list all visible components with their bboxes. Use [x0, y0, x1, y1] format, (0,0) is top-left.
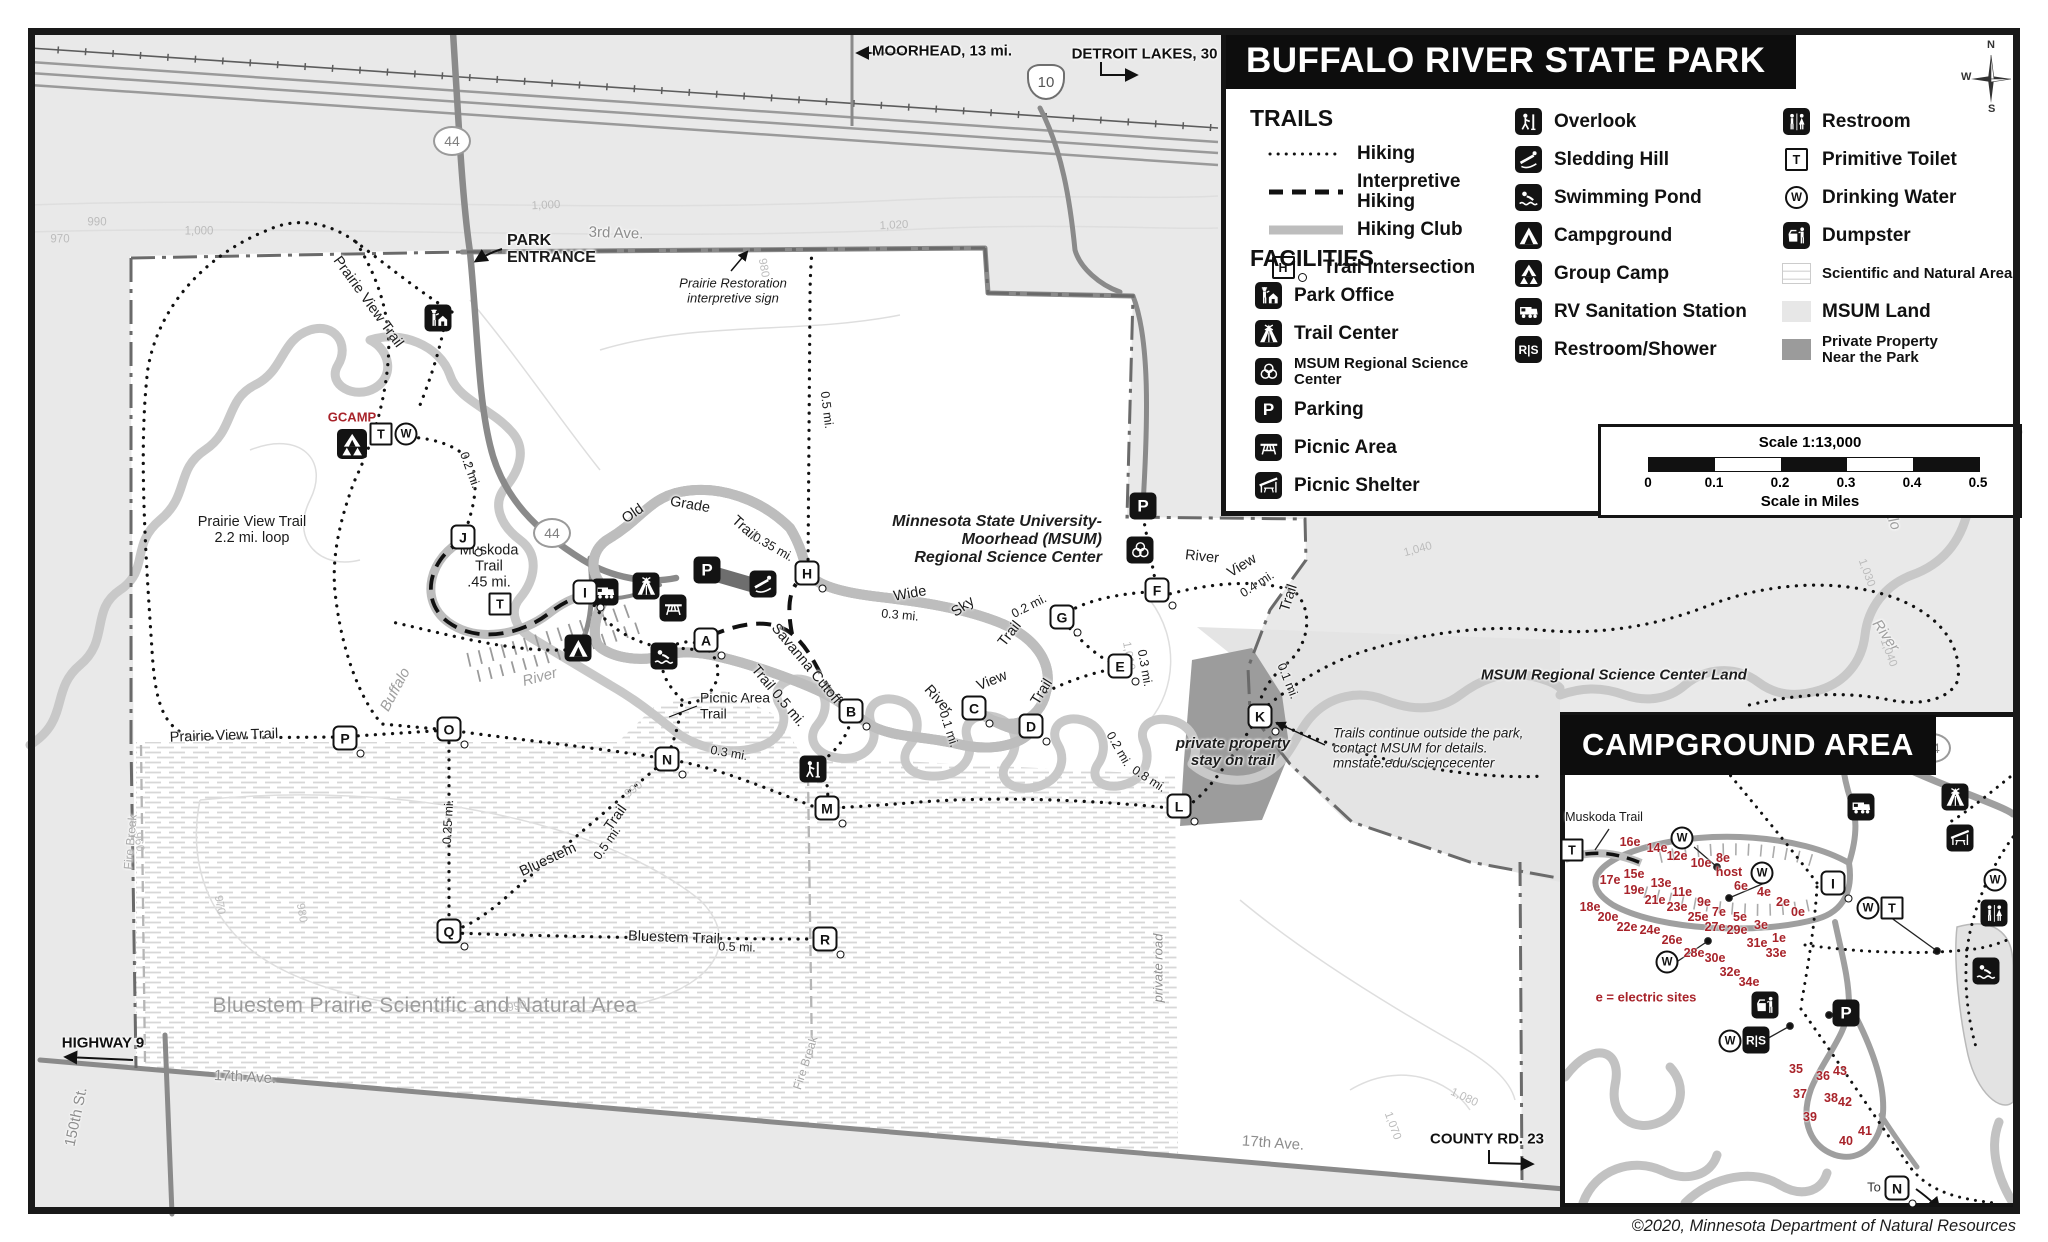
- dashed-sample: [1266, 177, 1346, 206]
- swim-icon: [1515, 184, 1542, 211]
- facility-legend-item: RV Sanitation Station: [1514, 297, 1774, 326]
- facility-legend-item: Park Office: [1254, 281, 1504, 310]
- campground-inset: [1560, 712, 2018, 1208]
- facility-legend-item: TPrimitive Toilet: [1782, 145, 2018, 174]
- scale-title: Scale 1:13,000: [1601, 434, 2019, 451]
- sw-priv-cell: [1782, 335, 1811, 364]
- rv-icon: [1515, 298, 1542, 325]
- inset-title: CAMPGROUND AREA: [1560, 715, 1936, 775]
- rings-icon: [1255, 358, 1282, 385]
- facility-legend-label: Restroom/Shower: [1554, 340, 1717, 359]
- facilities-column-3: RestroomTPrimitive ToiletWDrinking Water…: [1782, 107, 2018, 373]
- facility-legend-item: Dumpster: [1782, 221, 2018, 250]
- facilities-heading: FACILITIES: [1250, 245, 1374, 272]
- compass-e: E: [2013, 71, 2020, 83]
- picnic-icon: [1255, 434, 1282, 461]
- facility-legend-item: Trail Center: [1254, 319, 1504, 348]
- facility-legend-item: PParking: [1254, 395, 1504, 424]
- trails-legend-label: Hiking Club: [1357, 220, 1463, 239]
- facility-legend-item: Overlook: [1514, 107, 1774, 136]
- look-icon: [1515, 108, 1542, 135]
- facility-legend-label: Restroom: [1822, 112, 1911, 131]
- facility-legend-item: Picnic Area: [1254, 433, 1504, 462]
- b-rv-cell: [1514, 297, 1543, 326]
- facility-legend-item: Restroom: [1782, 107, 2018, 136]
- facility-legend-item: Campground: [1514, 221, 1774, 250]
- facilities-column-1: Park OfficeTrail CenterMSUM Regional Sci…: [1254, 281, 1504, 509]
- b-lodge-cell: [1254, 319, 1283, 348]
- campground-inset-art: [1565, 717, 2013, 1203]
- b-picnic-cell: [1254, 433, 1283, 462]
- b-rings-cell: [1254, 357, 1283, 386]
- facility-legend-item: Picnic Shelter: [1254, 471, 1504, 500]
- b-gcamp-cell: [1514, 259, 1543, 288]
- facility-legend-label: Swimming Pond: [1554, 188, 1702, 207]
- facility-legend-item: MSUM Land: [1782, 297, 2018, 326]
- b-tent-cell: [1514, 221, 1543, 250]
- scale-caption: Scale in Miles: [1601, 493, 2019, 510]
- sw-msum-swatch: [1782, 301, 1811, 322]
- facility-legend-item: Swimming Pond: [1514, 183, 1774, 212]
- facility-legend-item: Private Property Near the Park: [1782, 335, 2018, 364]
- facility-legend-label: Sledding Hill: [1554, 150, 1669, 169]
- sw-priv-swatch: [1782, 339, 1811, 360]
- facility-legend-label: MSUM Land: [1822, 302, 1931, 321]
- facility-legend-label: Scientific and Natural Area: [1822, 266, 2012, 281]
- drinking-water-icon: W: [1785, 186, 1808, 209]
- b-swim-cell: [1514, 183, 1543, 212]
- facility-legend-label: Primitive Toilet: [1822, 150, 1957, 169]
- w-T-cell: T: [1782, 145, 1811, 174]
- inset-title-text: CAMPGROUND AREA: [1582, 727, 1914, 763]
- wc-icon: [1783, 108, 1810, 135]
- trails-heading: TRAILS: [1250, 105, 1333, 132]
- scale-tick: 0.4: [1903, 475, 1922, 490]
- compass-w: W: [1961, 71, 1971, 83]
- b-shelter-cell: [1254, 471, 1283, 500]
- b-sled-cell: [1514, 145, 1543, 174]
- facility-legend-label: Dumpster: [1822, 226, 1911, 245]
- compass-n: N: [1987, 39, 1995, 51]
- map-title-bar: BUFFALO RIVER STATE PARK: [1226, 33, 1796, 89]
- scale-tick: 0: [1644, 475, 1652, 490]
- dotted-sample: [1266, 139, 1346, 168]
- scale-bar: [1648, 457, 1980, 472]
- b-dump-cell: [1782, 221, 1811, 250]
- scale-tick: 0.5: [1969, 475, 1988, 490]
- b-P-cell: P: [1254, 395, 1283, 424]
- trails-legend-item: Hiking: [1266, 139, 1516, 168]
- facility-legend-item: Scientific and Natural Area: [1782, 259, 2018, 288]
- trails-legend-item: Hiking Club: [1266, 215, 1516, 244]
- trails-legend-item: Interpretive Hiking: [1266, 177, 1516, 206]
- facility-legend-label: Trail Center: [1294, 324, 1399, 343]
- gcamp-icon: [1515, 260, 1542, 287]
- dump-icon: [1783, 222, 1810, 249]
- scale-tick: 0.1: [1705, 475, 1724, 490]
- scale-ticks: 00.10.20.30.40.5: [1648, 475, 1978, 491]
- facility-legend-label: Drinking Water: [1822, 188, 1956, 207]
- sw-sna-swatch: [1782, 263, 1811, 284]
- facility-legend-item: R|SRestroom/Shower: [1514, 335, 1774, 364]
- b-office-cell: [1254, 281, 1283, 310]
- park-map-page: CAMPGROUND AREA BUFFALO RIVER STATE PARK…: [0, 0, 2048, 1242]
- tent-icon: [1515, 222, 1542, 249]
- scale-tick: 0.2: [1771, 475, 1790, 490]
- trails-legend-label: Interpretive Hiking: [1357, 172, 1516, 211]
- facility-legend-label: Parking: [1294, 400, 1364, 419]
- facilities-column-2: OverlookSledding HillSwimming PondCampgr…: [1514, 107, 1774, 373]
- facility-legend-label: Park Office: [1294, 286, 1394, 305]
- facility-legend-item: MSUM Regional Science Center: [1254, 357, 1504, 386]
- sled-icon: [1515, 146, 1542, 173]
- b-RS-cell: R|S: [1514, 335, 1543, 364]
- facility-legend-label: Picnic Area: [1294, 438, 1397, 457]
- lodge-icon: [1255, 320, 1282, 347]
- scale-tick: 0.3: [1837, 475, 1856, 490]
- facility-legend-label: Group Camp: [1554, 264, 1669, 283]
- facility-legend-label: Private Property Near the Park: [1822, 334, 1938, 365]
- office-icon: [1255, 282, 1282, 309]
- facility-legend-label: Overlook: [1554, 112, 1636, 131]
- facility-legend-label: Picnic Shelter: [1294, 476, 1420, 495]
- facility-legend-label: Campground: [1554, 226, 1672, 245]
- scale-box: Scale 1:13,000 00.10.20.30.40.5 Scale in…: [1598, 424, 2022, 518]
- facility-legend-item: WDrinking Water: [1782, 183, 2018, 212]
- copyright-text: ©2020, Minnesota Department of Natural R…: [1631, 1217, 2016, 1236]
- trails-legend-label: Hiking: [1357, 144, 1415, 163]
- map-title: BUFFALO RIVER STATE PARK: [1246, 41, 1766, 81]
- c-W-cell: W: [1782, 183, 1811, 212]
- club-sample: [1266, 215, 1346, 244]
- facility-legend-item: Group Camp: [1514, 259, 1774, 288]
- primitive-toilet-icon: T: [1785, 148, 1808, 171]
- sw-msum-cell: [1782, 297, 1811, 326]
- b-look-cell: [1514, 107, 1543, 136]
- sw-sna-cell: [1782, 259, 1811, 288]
- RS-icon: R|S: [1515, 336, 1542, 363]
- facility-legend-item: Sledding Hill: [1514, 145, 1774, 174]
- shelter-icon: [1255, 472, 1282, 499]
- b-wc-cell: [1782, 107, 1811, 136]
- facility-legend-label: RV Sanitation Station: [1554, 302, 1747, 321]
- P-icon: P: [1255, 396, 1282, 423]
- facility-legend-label: MSUM Regional Science Center: [1294, 356, 1504, 387]
